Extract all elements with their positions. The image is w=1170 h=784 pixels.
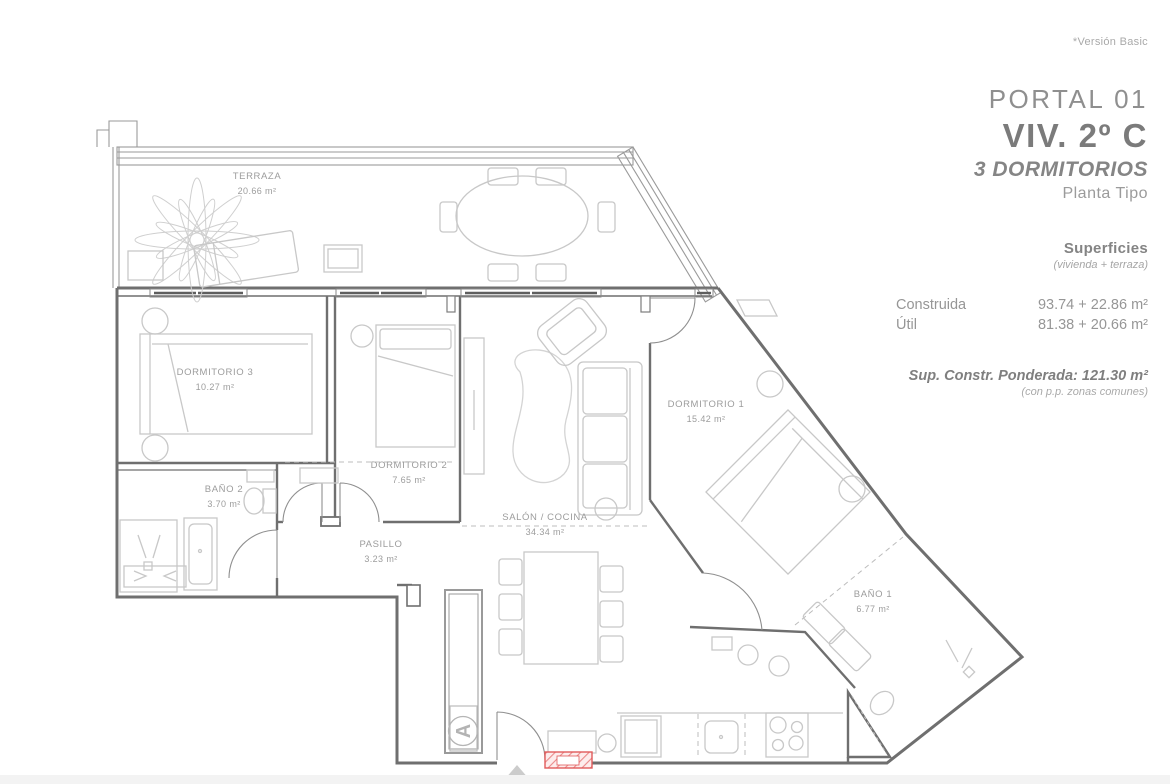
terrace-table [456, 176, 588, 256]
windows [150, 289, 713, 312]
bed-dormitorio2 [351, 325, 455, 447]
room-label-dormitorio1: DORMITORIO 1 15.42 m² [668, 398, 745, 427]
room-label-terraza: TERRAZA 20.66 m² [233, 170, 282, 199]
version-note: *Versión Basic [1073, 36, 1148, 48]
side-table [128, 251, 163, 280]
section-marker-a: A [453, 724, 475, 738]
kitchen-counter [548, 637, 843, 757]
room-label-dormitorio3: DORMITORIO 3 10.27 m² [177, 366, 254, 395]
bed-dormitorio1 [706, 300, 870, 574]
room-label-bano2: BAÑO 2 3.70 m² [205, 483, 243, 512]
dining-table-chairs [499, 552, 623, 664]
surfaces-subtitle: (vivienda + terraza) [896, 259, 1148, 271]
surfaces-title: Superficies [896, 240, 1148, 257]
coffee-table [595, 498, 617, 520]
portal-title: PORTAL 01 [974, 84, 1148, 115]
wardrobe [464, 338, 484, 474]
ponderada-note: (con p.p. zonas comunes) [896, 386, 1148, 398]
ponderada-total: Sup. Constr. Ponderada: 121.30 m² [896, 368, 1148, 384]
bedrooms-subtitle: 3 DORMITORIOS [974, 158, 1148, 182]
unit-title: VIV. 2º C [974, 117, 1148, 155]
sofa [578, 362, 642, 515]
rug [513, 350, 572, 483]
terrace-chairs [440, 168, 615, 281]
room-label-bano1: BAÑO 1 6.77 m² [854, 588, 892, 617]
surface-row-util: Útil 81.38 + 20.66 m² [896, 315, 1148, 335]
sun-lounger [193, 230, 298, 287]
surfaces-panel: Superficies (vivienda + terraza) Constru… [896, 240, 1148, 398]
surface-row-construida: Construida 93.74 + 22.86 m² [896, 295, 1148, 315]
room-label-pasillo: PASILLO 3.23 m² [359, 538, 402, 567]
door-arcs [229, 298, 762, 760]
room-label-dormitorio2: DORMITORIO 2 7.65 m² [371, 459, 448, 488]
installation-shaft [545, 752, 592, 768]
room-label-salon: SALÓN / COCINA 34.34 m² [502, 511, 587, 540]
armchair [534, 295, 611, 370]
page-edge [0, 775, 1170, 784]
bathroom1-fixtures [802, 601, 975, 719]
floorplan-page: A TERRAZA 20.66 m² DORMITORIO 3 10.27 m²… [0, 0, 1170, 784]
title-block: PORTAL 01 VIV. 2º C 3 DORMITORIOS Planta… [974, 84, 1148, 203]
plan-type: Planta Tipo [974, 185, 1148, 203]
